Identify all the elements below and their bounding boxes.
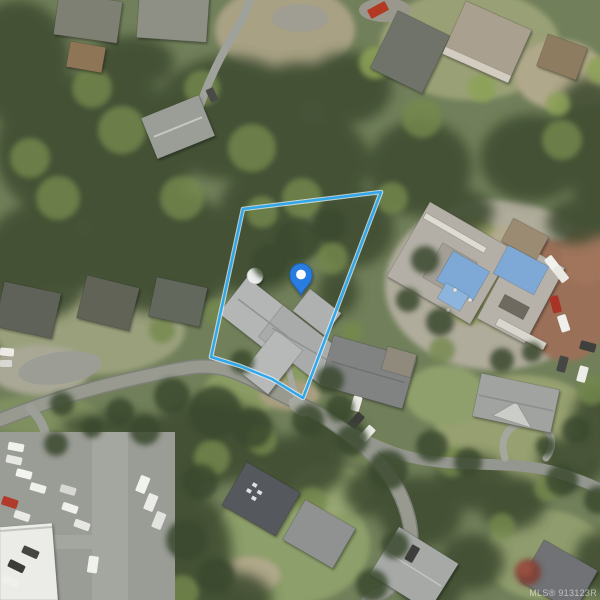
map-viewport[interactable]: MLS® 913123R: [0, 0, 600, 600]
autumn-tree: [515, 559, 541, 585]
pin-dot: [296, 270, 306, 280]
aerial-imagery: MLS® 913123R: [0, 0, 600, 600]
mls-watermark: MLS® 913123R: [529, 588, 597, 598]
